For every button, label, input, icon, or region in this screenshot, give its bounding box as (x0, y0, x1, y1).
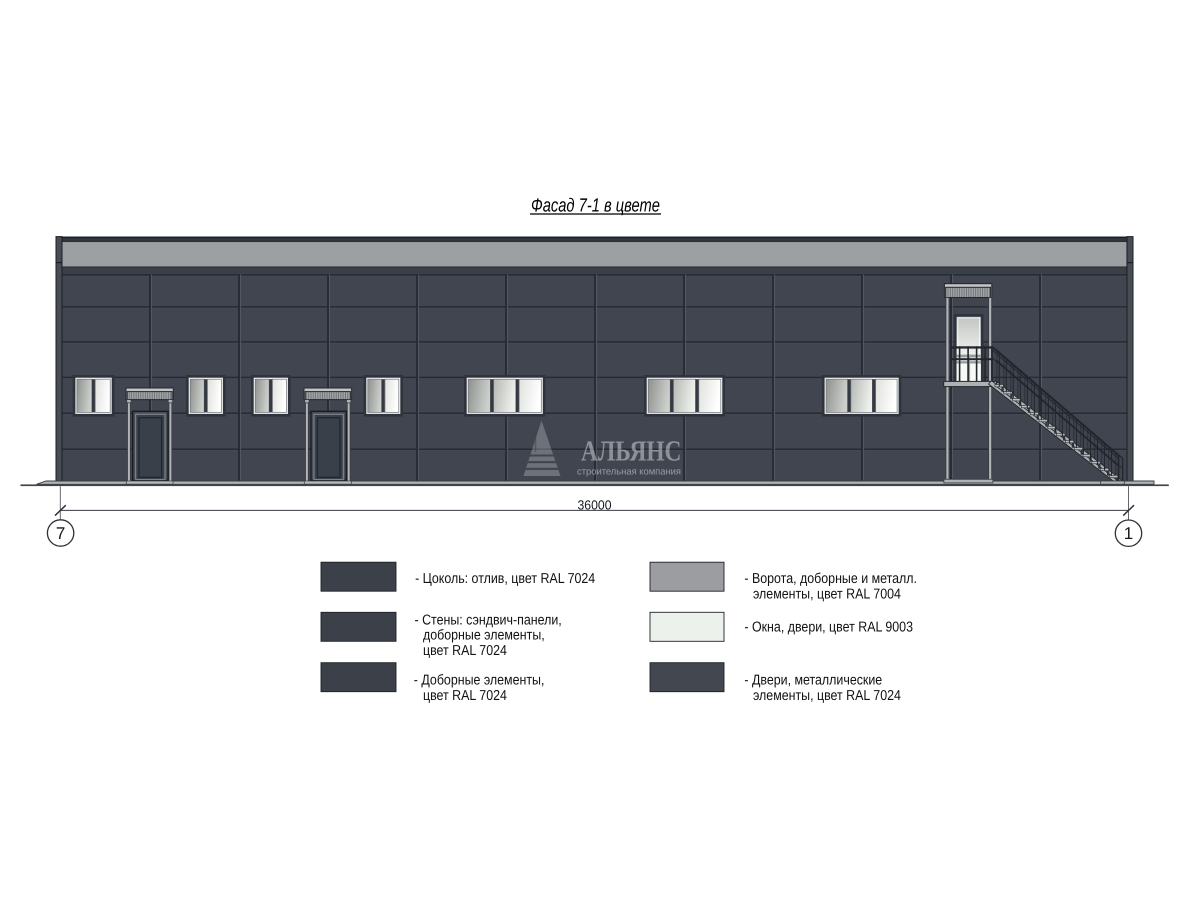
svg-text:Фасад 7-1 в цвете: Фасад 7-1 в цвете (531, 195, 660, 216)
svg-text:элементы, цвет RAL 7004: элементы, цвет RAL 7004 (753, 586, 901, 602)
svg-text:- Стены: сэндвич-панели,: - Стены: сэндвич-панели, (415, 612, 562, 628)
svg-text:доборные элементы,: доборные элементы, (423, 628, 545, 644)
svg-text:цвет RAL 7024: цвет RAL 7024 (423, 643, 507, 659)
svg-text:- Окна, двери, цвет RAL 9003: - Окна, двери, цвет RAL 9003 (744, 620, 913, 636)
svg-text:1: 1 (1124, 524, 1133, 543)
svg-text:- Доборные элементы,: - Доборные элементы, (414, 673, 545, 689)
svg-text:строительная компания: строительная компания (577, 467, 681, 478)
svg-text:- Цоколь: отлив, цвет RAL 7024: - Цоколь: отлив, цвет RAL 7024 (415, 571, 595, 587)
svg-text:цвет RAL 7024: цвет RAL 7024 (423, 688, 507, 704)
svg-text:- Двери, металлические: - Двери, металлические (744, 673, 882, 689)
svg-text:АЛЬЯНС: АЛЬЯНС (581, 435, 682, 467)
svg-text:- Ворота, доборные и металл.: - Ворота, доборные и металл. (744, 571, 917, 587)
svg-text:элементы, цвет RAL 7024: элементы, цвет RAL 7024 (753, 688, 901, 704)
svg-text:36000: 36000 (578, 498, 612, 513)
svg-text:7: 7 (56, 524, 65, 543)
